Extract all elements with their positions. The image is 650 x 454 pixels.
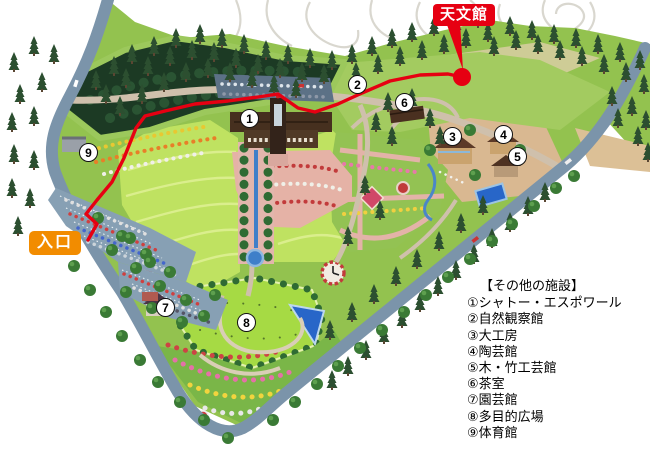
- entrance-label: 入口: [29, 231, 81, 255]
- map-marker-3: 3: [443, 127, 462, 146]
- legend-item: ⑥茶室: [467, 376, 622, 392]
- map-marker-8: 8: [237, 313, 256, 332]
- map-marker-7: 7: [156, 298, 175, 317]
- tenmonkan-label: 天文館: [433, 4, 495, 26]
- legend-item: ①シャトー・エスポワール: [467, 295, 622, 311]
- legend-item: ⑧多目的広場: [467, 409, 622, 425]
- park-map: 天文館 入口 1 2 3 4 5 6 7 8 9 【その他の施設】 ①シャトー・…: [0, 0, 650, 454]
- legend-item: ③大工房: [467, 328, 622, 344]
- map-marker-4: 4: [494, 125, 513, 144]
- map-marker-9: 9: [79, 143, 98, 162]
- map-marker-5: 5: [508, 147, 527, 166]
- fountain: [247, 250, 263, 266]
- map-marker-6: 6: [395, 93, 414, 112]
- legend: 【その他の施設】 ①シャトー・エスポワール ②自然観察館 ③大工房 ④陶芸館 ⑤…: [467, 278, 622, 441]
- tenmonkan-dot: [453, 68, 471, 86]
- map-marker-2: 2: [348, 75, 367, 94]
- legend-item: ⑤木・竹工芸館: [467, 360, 622, 376]
- legend-item: ②自然観察館: [467, 311, 622, 327]
- flower-clock: [322, 262, 344, 284]
- legend-item: ⑦園芸館: [467, 392, 622, 408]
- legend-title: 【その他の施設】: [467, 278, 622, 294]
- legend-item: ⑨体育館: [467, 425, 622, 441]
- map-marker-1: 1: [240, 109, 259, 128]
- legend-item: ④陶芸館: [467, 344, 622, 360]
